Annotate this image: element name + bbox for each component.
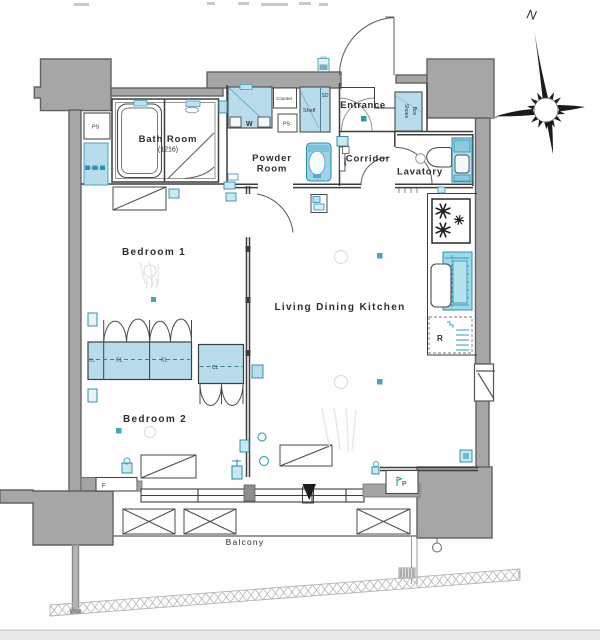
- svg-text:Entrance: Entrance: [340, 100, 385, 111]
- svg-text:PS: PS: [92, 125, 100, 131]
- svg-text:F: F: [102, 484, 106, 490]
- svg-text:Powder: Powder: [252, 153, 292, 164]
- svg-text:Balcony: Balcony: [226, 537, 265, 547]
- svg-text:CL: CL: [212, 365, 219, 371]
- svg-text:R: R: [437, 334, 443, 343]
- svg-text:P: P: [402, 481, 407, 488]
- svg-text:Box: Box: [411, 107, 417, 116]
- svg-text:SD: SD: [322, 93, 329, 99]
- svg-text:Corridor: Corridor: [346, 154, 390, 165]
- svg-text:Lavatory: Lavatory: [397, 167, 443, 178]
- svg-text:PS: PS: [283, 122, 290, 128]
- svg-text:Room: Room: [257, 164, 288, 175]
- svg-text:Living Dining Kitchen: Living Dining Kitchen: [274, 302, 405, 313]
- svg-text:CL: CL: [161, 358, 168, 364]
- svg-text:Bath Room: Bath Room: [139, 134, 198, 145]
- svg-text:CL: CL: [116, 358, 123, 364]
- svg-text:(1216): (1216): [158, 147, 178, 154]
- svg-text:Shelf: Shelf: [303, 108, 316, 114]
- svg-text:Bedroom 2: Bedroom 2: [123, 414, 187, 425]
- svg-text:Counter: Counter: [276, 96, 293, 101]
- svg-text:CL: CL: [89, 358, 95, 363]
- svg-text:Bedroom 1: Bedroom 1: [122, 247, 186, 258]
- svg-text:W: W: [246, 121, 253, 128]
- svg-text:Shoes: Shoes: [403, 104, 409, 119]
